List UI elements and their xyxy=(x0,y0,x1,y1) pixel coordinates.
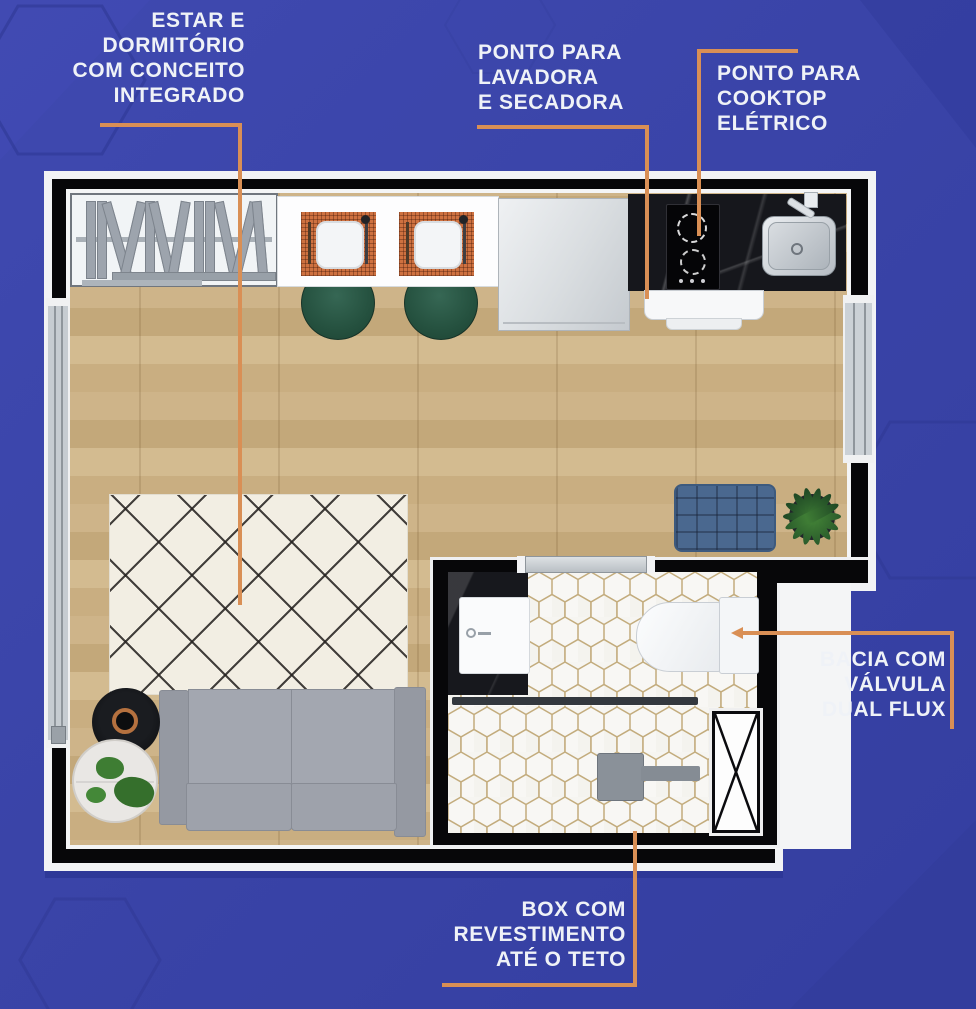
shower-glass-partition xyxy=(452,697,698,705)
potted-plant xyxy=(781,486,843,548)
sofa-back-cushion xyxy=(291,689,395,785)
shower-head xyxy=(597,753,644,801)
window-left xyxy=(46,298,70,748)
tray-table xyxy=(72,739,158,823)
dining-counter xyxy=(277,196,499,287)
washer-dryer-tray xyxy=(666,318,742,330)
plate xyxy=(316,221,364,269)
sofa xyxy=(159,687,425,836)
wall-segment xyxy=(775,557,868,583)
cooktop xyxy=(666,204,720,290)
moss-plant xyxy=(86,787,106,803)
sofa-seat xyxy=(186,783,292,831)
bathroom-door xyxy=(647,556,655,573)
condiment-dot xyxy=(361,215,370,224)
drain xyxy=(791,243,803,255)
knife xyxy=(365,222,368,264)
condiment-dot xyxy=(459,215,468,224)
window-right xyxy=(843,295,874,463)
sofa-arm xyxy=(159,690,189,825)
shaft-x-icon xyxy=(715,714,757,830)
area-rug xyxy=(109,494,408,695)
burner xyxy=(680,249,706,275)
bathroom-sink xyxy=(459,597,530,674)
burner xyxy=(677,213,707,243)
kitchen-countertop xyxy=(628,194,846,291)
toilet-bowl xyxy=(636,602,724,672)
sofa-seat xyxy=(291,783,397,831)
fork xyxy=(406,222,409,264)
bathroom-door-leaf xyxy=(525,556,647,573)
copper-ring xyxy=(112,708,138,734)
floor-plan-poster: ESTAR E DORMITÓRIO COM CONCEITO INTEGRAD… xyxy=(0,0,976,1009)
vanity xyxy=(448,572,528,695)
placemat xyxy=(301,212,376,276)
shaft-box xyxy=(712,711,760,833)
plate xyxy=(414,221,462,269)
fork xyxy=(308,222,311,264)
moss-plant xyxy=(96,757,124,779)
bathroom-door xyxy=(517,556,525,573)
shower-arm xyxy=(641,766,700,781)
shelf-front-bar xyxy=(82,280,202,286)
bookshelf xyxy=(70,193,278,287)
kitchen-sink xyxy=(762,216,836,276)
faucet-icon xyxy=(466,628,476,638)
knife xyxy=(463,222,466,264)
sofa-arm xyxy=(394,687,426,837)
window-handle xyxy=(51,726,66,744)
sofa-back-cushion xyxy=(188,689,292,785)
leader-toilet-arrow xyxy=(731,627,743,639)
placemat xyxy=(399,212,474,276)
washer-dryer-point xyxy=(644,290,764,320)
fridge xyxy=(498,198,630,331)
faucet-icon xyxy=(478,632,491,635)
ottoman xyxy=(674,484,776,552)
